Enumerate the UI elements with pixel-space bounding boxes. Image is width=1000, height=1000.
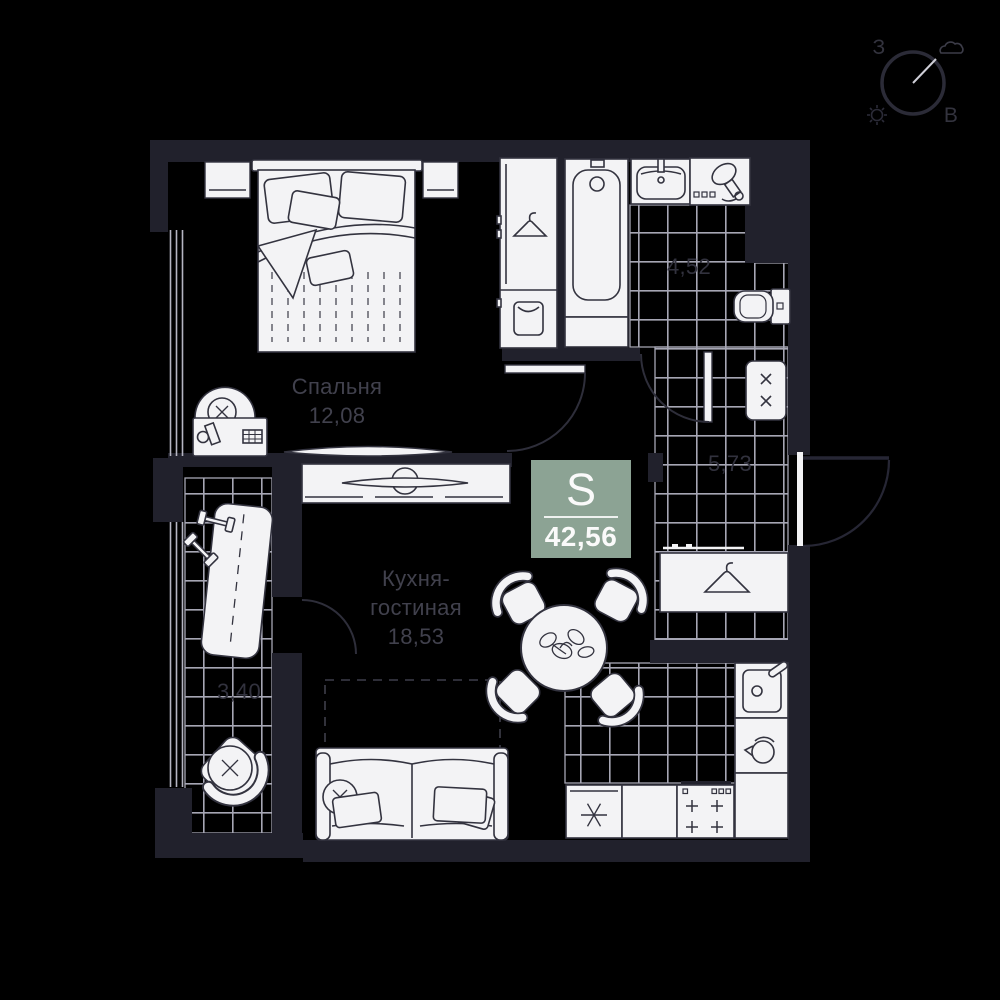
kitchen-living-area: 18,53 (370, 622, 462, 651)
floor-plan-drawing (0, 0, 1000, 1000)
bathroom-area-label: 4,52 (667, 255, 711, 279)
tv-console-icon (302, 464, 510, 503)
entrance-door-icon (797, 452, 889, 546)
kitchen-living-name-line2: гостиная (370, 593, 462, 622)
stove-icon (677, 781, 734, 838)
total-area-badge: S 42,56 (531, 460, 631, 558)
loggia-area-label: 3,40 (217, 680, 261, 704)
bedroom-door-icon (505, 365, 585, 451)
dining-chair-icon (592, 573, 643, 625)
floor-plan: Спальня 12,08 Кухня- гостиная 18,53 4,52… (0, 0, 1000, 1000)
sun-icon (867, 105, 887, 125)
bedroom-area: 12,08 (292, 401, 383, 430)
kitchen-counter (622, 785, 677, 838)
toilet-icon (734, 289, 790, 324)
kettle-icon (735, 718, 788, 773)
loggia-window-icon (171, 522, 183, 787)
compass-needle (913, 59, 936, 83)
washing-machine-icon (746, 361, 786, 420)
cloud-icon (940, 42, 963, 53)
bathtub-icon (565, 159, 628, 347)
sofa-icon (316, 748, 508, 840)
kitchen-living-name-line1: Кухня- (370, 564, 462, 593)
total-area-value: 42,56 (545, 522, 618, 552)
kitchen-living-label: Кухня- гостиная 18,53 (370, 564, 462, 651)
fridge-icon (566, 785, 622, 838)
hairdryer-icon (690, 158, 750, 205)
badge-divider (544, 516, 618, 518)
bedroom-furniture (193, 158, 557, 503)
bedroom-name: Спальня (292, 372, 383, 401)
sink-icon (631, 159, 690, 204)
vanity-desk-icon (193, 387, 267, 456)
total-area-symbol: S (566, 467, 596, 513)
dining-table-icon (521, 605, 607, 691)
bedroom-window-icon (171, 230, 183, 456)
bedroom-tv-icon (284, 447, 452, 457)
hanger-closet-icon (660, 544, 788, 612)
compass-west-label: З (873, 36, 886, 60)
kitchen-sink-icon (735, 660, 789, 718)
double-bed-icon (252, 160, 422, 352)
rug-icon (325, 680, 500, 752)
hallway-area-label: 5,73 (708, 452, 752, 476)
bedroom-label: Спальня 12,08 (292, 372, 383, 430)
wardrobe-icon (497, 158, 557, 348)
loggia-door-icon (302, 600, 356, 654)
compass-east-label: В (944, 104, 958, 128)
kitchen-corner-unit (735, 773, 788, 838)
